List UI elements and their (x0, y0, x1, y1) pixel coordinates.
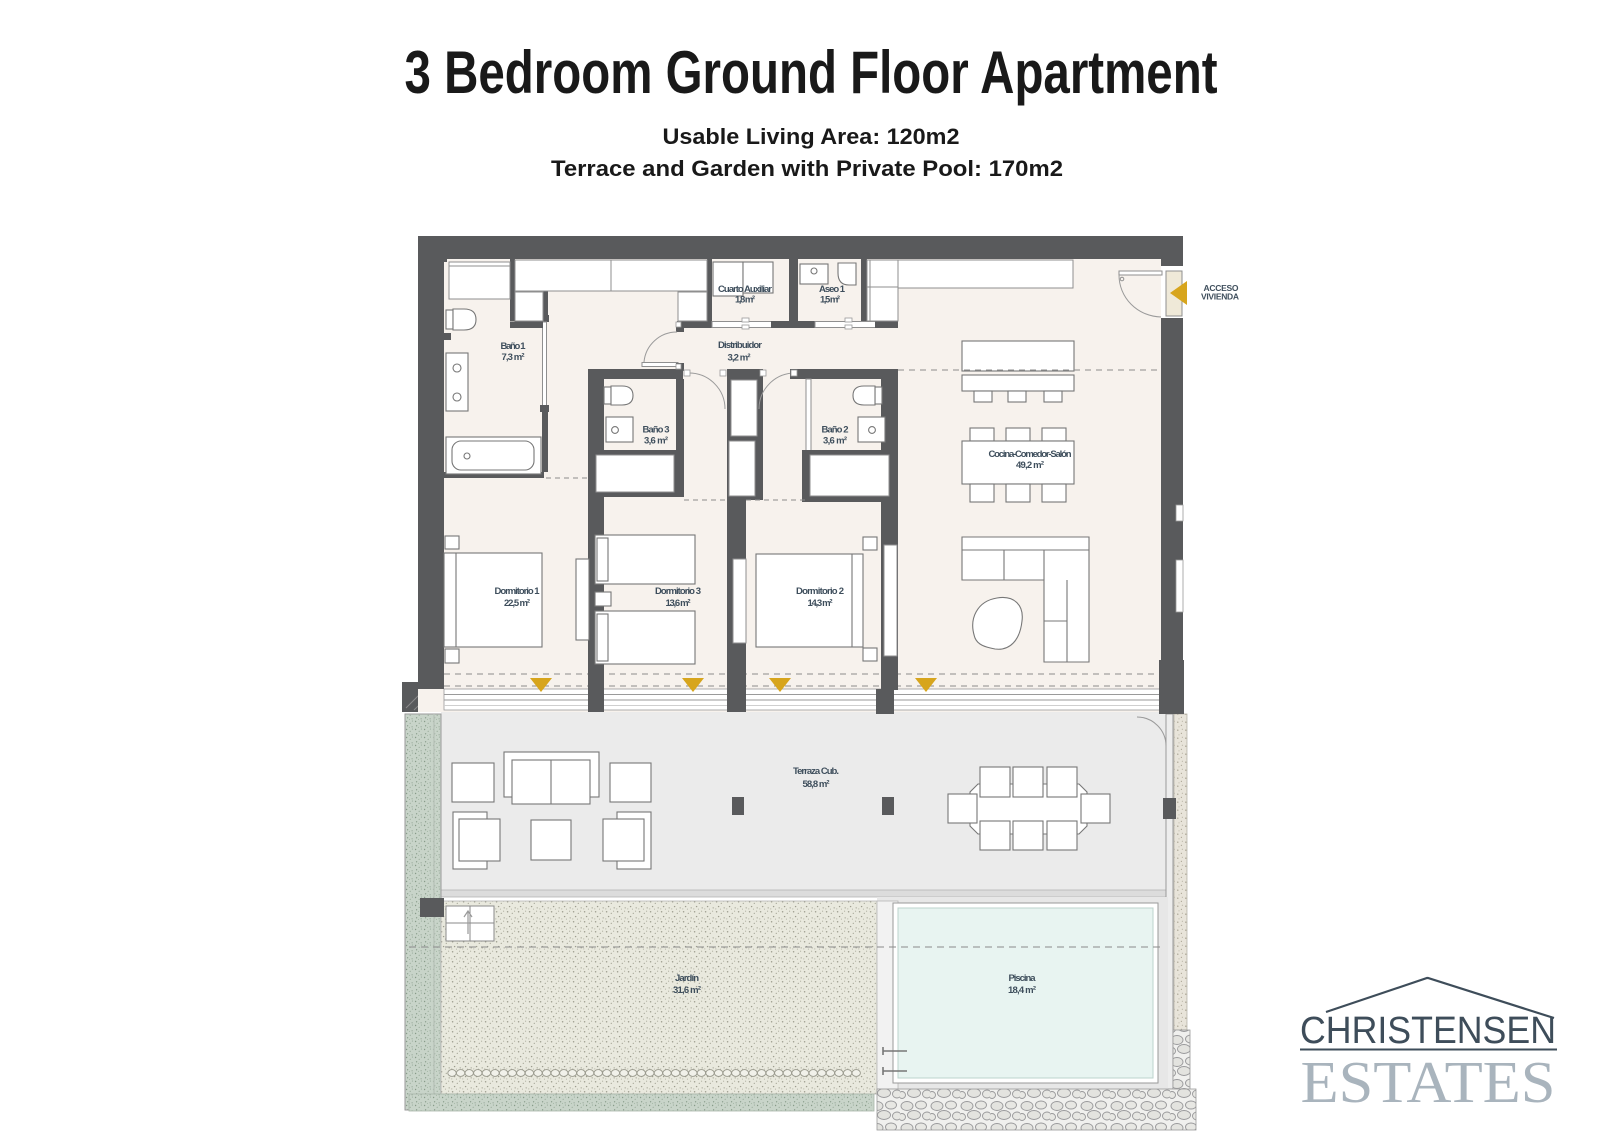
svg-text:3,2 m²: 3,2 m² (728, 353, 751, 364)
svg-text:Dormitorio 1: Dormitorio 1 (495, 586, 541, 597)
svg-text:1,5 m²: 1,5 m² (820, 295, 840, 306)
svg-text:Dormitorio 2: Dormitorio 2 (796, 586, 844, 597)
svg-text:Baño 3: Baño 3 (643, 425, 670, 436)
svg-text:Cocina-Comedor-Salón: Cocina-Comedor-Salón (989, 449, 1072, 460)
svg-text:Dormitorio 3: Dormitorio 3 (655, 586, 701, 597)
svg-text:49,2 m²: 49,2 m² (1016, 460, 1044, 471)
svg-text:Cuarto Auxiliar: Cuarto Auxiliar (718, 284, 772, 295)
svg-text:3,6 m²: 3,6 m² (644, 436, 668, 447)
svg-text:14,3 m²: 14,3 m² (808, 598, 833, 609)
svg-text:ESTATES: ESTATES (1301, 1049, 1556, 1115)
svg-text:Aseo 1: Aseo 1 (819, 284, 846, 295)
svg-text:Baño 2: Baño 2 (822, 425, 849, 436)
svg-text:Baño 1: Baño 1 (501, 341, 527, 352)
svg-text:Piscina: Piscina (1009, 973, 1037, 984)
svg-text:Distribuidor: Distribuidor (718, 340, 762, 351)
svg-text:31,6 m²: 31,6 m² (673, 985, 701, 996)
svg-text:58,8 m²: 58,8 m² (803, 779, 830, 790)
svg-text:CHRISTENSEN: CHRISTENSEN (1300, 1010, 1556, 1052)
svg-text:1,8 m²: 1,8 m² (735, 295, 755, 306)
svg-text:3 Bedroom Ground Floor Apartme: 3 Bedroom Ground Floor Apartment (405, 39, 1218, 106)
svg-text:Terrace and Garden with Privat: Terrace and Garden with Private Pool: 17… (551, 156, 1063, 181)
svg-text:18,4 m²: 18,4 m² (1008, 985, 1036, 996)
svg-text:13,6 m²: 13,6 m² (666, 598, 691, 609)
svg-text:22,5 m²: 22,5 m² (504, 598, 530, 609)
svg-text:Usable Living Area: 120m2: Usable Living Area: 120m2 (663, 124, 960, 149)
svg-text:Terraza Cub.: Terraza Cub. (793, 766, 839, 777)
svg-text:VIVIENDA: VIVIENDA (1201, 292, 1239, 302)
svg-text:3,6 m²: 3,6 m² (823, 436, 847, 447)
svg-text:Jardín: Jardín (675, 973, 699, 984)
svg-text:7,3 m²: 7,3 m² (502, 352, 525, 363)
